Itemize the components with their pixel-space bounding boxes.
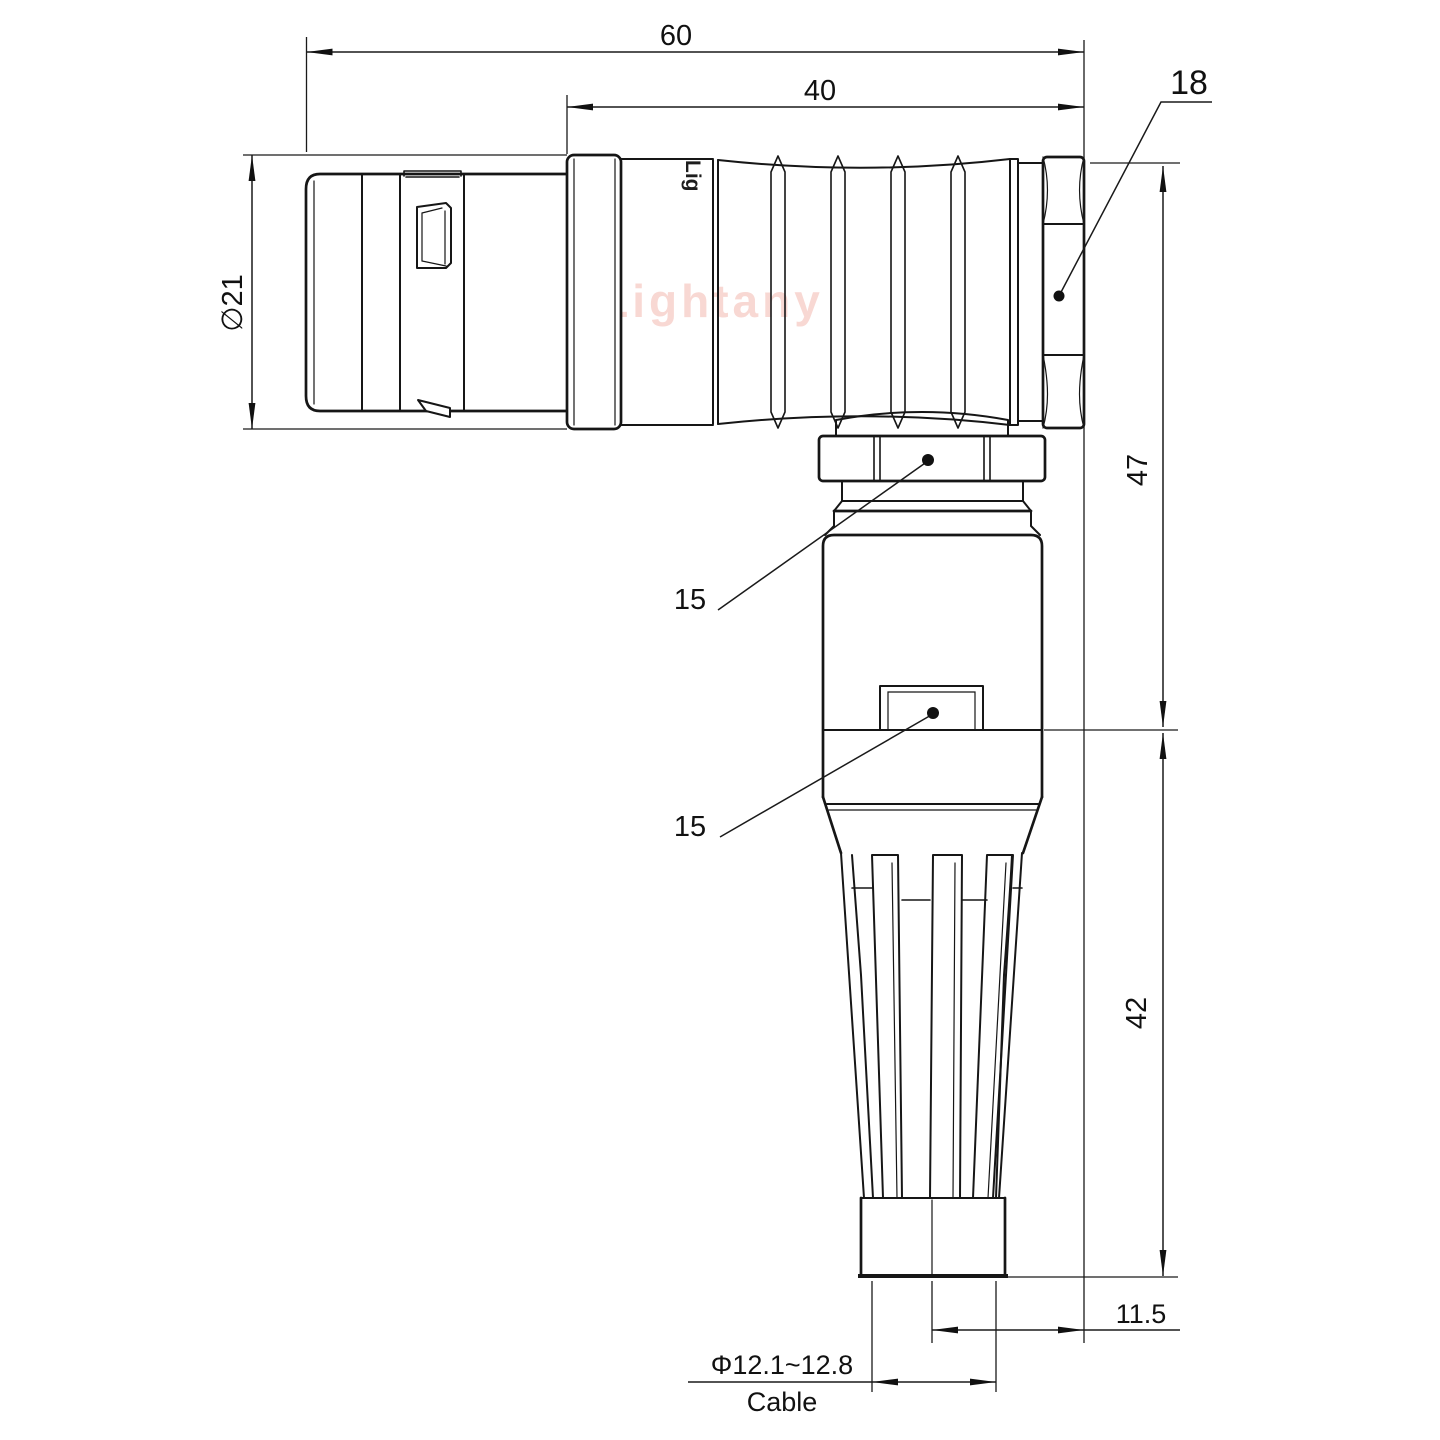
right-angle-assembly xyxy=(819,412,1045,1276)
dim-upper-height: 47 xyxy=(1122,166,1163,727)
connector-dimension-drawing: Lightany Lig xyxy=(0,0,1440,1440)
coupling-hex-nut xyxy=(1043,157,1084,428)
dim-text-rear-length: 40 xyxy=(804,75,836,107)
dim-text-shell-diameter: ∅21 xyxy=(217,274,249,332)
dim-cable-diameter: Φ12.1~12.8 Cable xyxy=(688,1350,996,1417)
dim-text-lower-height: 42 xyxy=(1121,997,1153,1029)
leader-body-flats: 15 xyxy=(674,707,939,843)
cable-caption-text: Cable xyxy=(747,1387,818,1417)
knurl-band xyxy=(951,156,965,428)
mounting-flange xyxy=(567,155,621,429)
elbow-root xyxy=(836,412,1008,436)
gland-neck xyxy=(825,481,1040,535)
knurl-band xyxy=(891,156,905,428)
dim-text-upper-height: 47 xyxy=(1122,454,1154,486)
dim-text-gland-nut-flats: 15 xyxy=(674,584,706,616)
shell-marking-text: Lig xyxy=(681,160,704,192)
extension-lines xyxy=(243,37,1180,1392)
sleeve-latch xyxy=(418,400,450,417)
cable-ferrule xyxy=(858,1198,1008,1276)
release-sleeve xyxy=(306,171,567,417)
technical-drawing-page: Lightany Lig xyxy=(0,0,1440,1440)
dim-text-coupling-nut-flats: 18 xyxy=(1170,64,1208,102)
lower-body xyxy=(823,535,1042,853)
dim-overall-length: 60 xyxy=(307,20,1085,52)
dim-text-cable-diameter: Φ12.1~12.8 xyxy=(711,1350,853,1380)
dim-cable-offset: 11.5 xyxy=(932,1299,1180,1330)
dim-text-body-flats: 15 xyxy=(674,811,706,843)
dim-rear-length: 40 xyxy=(567,75,1084,107)
rear-collar xyxy=(1010,159,1043,425)
strain-relief xyxy=(841,853,1022,1198)
knurl-band xyxy=(831,156,845,428)
dim-shell-diameter: ∅21 xyxy=(217,155,252,429)
dim-lower-height: 42 xyxy=(1121,733,1163,1276)
dim-text-overall-length: 60 xyxy=(660,20,692,52)
dim-text-cable-offset: 11.5 xyxy=(1116,1299,1167,1329)
